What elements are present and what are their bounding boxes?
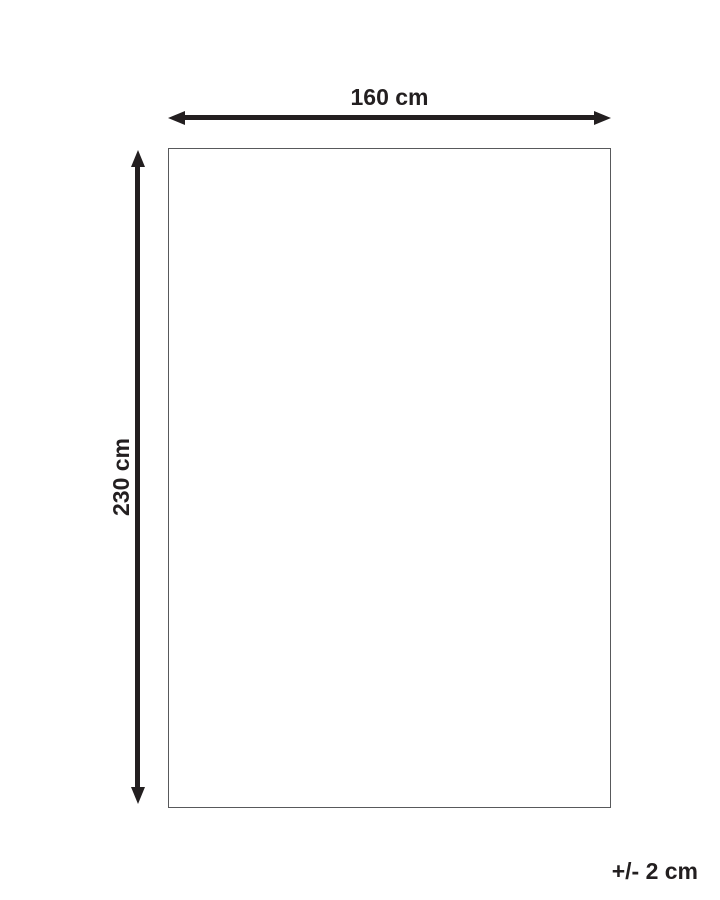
arrowhead-right-icon bbox=[594, 111, 611, 125]
arrow-shaft bbox=[135, 157, 140, 797]
width-dimension-arrow bbox=[168, 110, 611, 125]
height-dimension-arrow bbox=[130, 150, 145, 804]
product-outline-rectangle bbox=[168, 148, 611, 808]
arrow-shaft bbox=[175, 115, 604, 120]
width-dimension-label: 160 cm bbox=[168, 84, 611, 111]
tolerance-label: +/- 2 cm bbox=[612, 858, 698, 885]
dimension-diagram: 160 cm 230 cm +/- 2 cm bbox=[0, 0, 720, 900]
arrowhead-down-icon bbox=[131, 787, 145, 804]
